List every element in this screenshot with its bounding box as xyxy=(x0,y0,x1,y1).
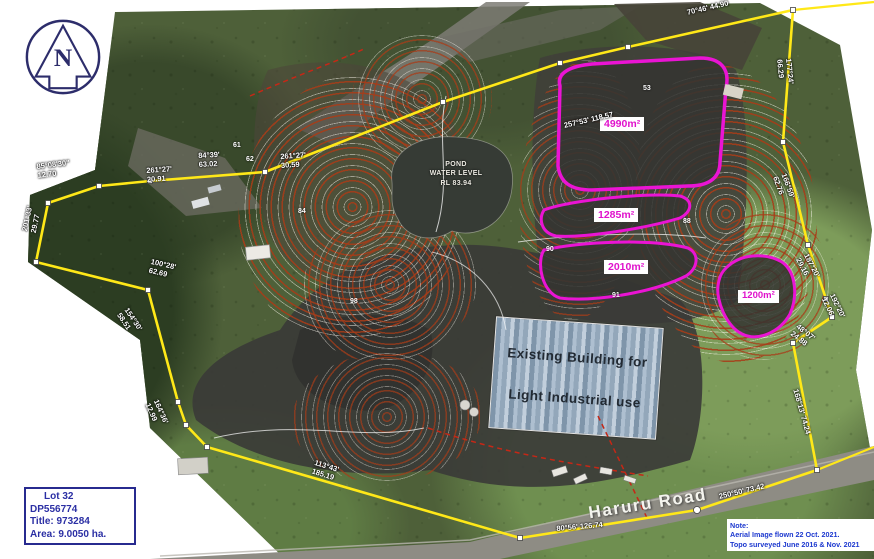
parcel-info-box: Lot 32 DP556774 Title: 973284 Area: 9.00… xyxy=(24,487,136,545)
red-dashed-line-3 xyxy=(250,48,366,96)
site-plan-canvas: Existing Building for Light Industrial u… xyxy=(0,0,874,559)
parcel-title: Title: 973284 xyxy=(30,516,130,529)
note-line2: Topo surveyed June 2016 & Nov. 2021 xyxy=(730,540,871,549)
spot-elevation: 90 xyxy=(546,246,554,253)
pond-label-line3: RL 83.94 xyxy=(408,179,504,188)
white-line-2 xyxy=(518,234,706,242)
boundary-extension-road xyxy=(817,447,874,470)
spot-elevation: 98 xyxy=(350,298,358,305)
north-arrow-icon: N xyxy=(22,16,104,98)
note-title: Note: xyxy=(730,521,871,530)
container-2 xyxy=(573,473,587,484)
parcel-dp: DP556774 xyxy=(30,504,130,517)
truck-2 xyxy=(207,184,221,193)
container-3 xyxy=(600,467,613,475)
note-line1: Aerial Image flown 22 Oct. 2021. xyxy=(730,530,871,539)
spot-elevation: 61 xyxy=(233,142,241,149)
survey-label: 84°39' 63.02 xyxy=(198,150,220,169)
boundary-extension-top xyxy=(793,2,874,10)
survey-label: 177°24' 66.29 xyxy=(775,58,796,85)
pond-label-line1: POND xyxy=(408,160,504,169)
tank-2 xyxy=(470,408,479,417)
spot-elevation: 84 xyxy=(298,208,306,215)
survey-label: 261°27' 20.91 xyxy=(146,164,173,184)
note-box: Note: Aerial Image flown 22 Oct. 2021. T… xyxy=(727,519,874,551)
tank-1 xyxy=(460,400,470,410)
parcel-area: Area: 9.0050 ha. xyxy=(30,529,130,542)
spot-elevation: 88 xyxy=(683,218,691,225)
white-line-3 xyxy=(214,428,424,438)
survey-overlay-layer xyxy=(0,0,874,559)
spot-elevation: 53 xyxy=(643,85,651,92)
pond-label-line2: WATER LEVEL xyxy=(408,169,504,178)
truck-1 xyxy=(191,197,209,209)
shed xyxy=(245,245,270,260)
area-label-2010: 2010m² xyxy=(604,260,648,274)
area-label-1200: 1200m² xyxy=(738,290,779,303)
shed-southwest xyxy=(178,457,209,475)
container-1 xyxy=(551,466,567,477)
white-line-4 xyxy=(432,252,506,330)
pond-label: POND WATER LEVEL RL 83.94 xyxy=(408,160,504,188)
survey-label: 261°27' 30.59 xyxy=(280,150,307,170)
area-label-1285: 1285m² xyxy=(594,208,638,222)
spot-elevation: 62 xyxy=(246,156,254,163)
north-arrow-letter: N xyxy=(54,44,72,72)
spot-elevation: 91 xyxy=(612,292,620,299)
parcel-lot: Lot 32 xyxy=(30,491,130,504)
